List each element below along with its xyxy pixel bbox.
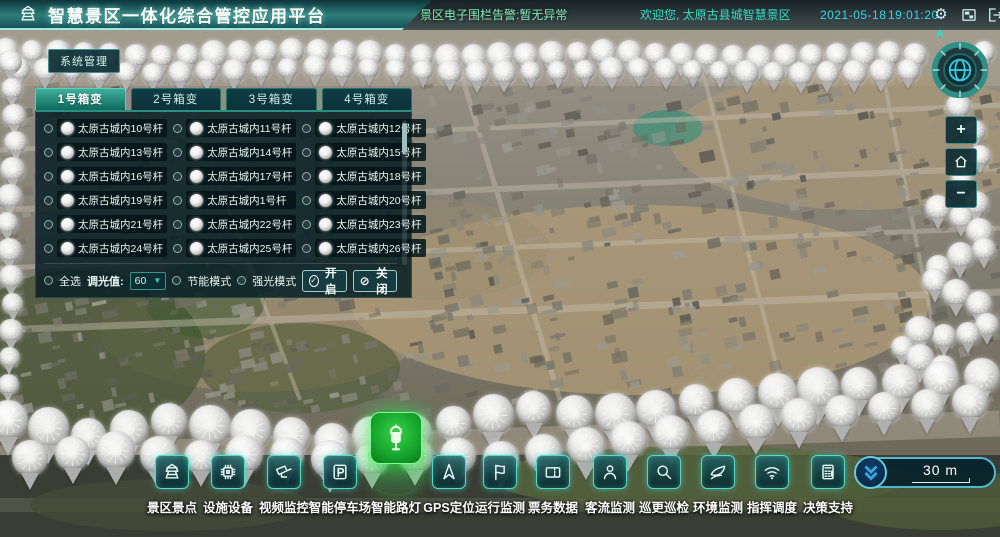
panel-body: 太原古城内10号杆太原古城内11号杆太原古城内12号杆太原古城内13号杆太原古城…: [35, 110, 412, 298]
home-icon: [953, 154, 969, 170]
toolbar-label[interactable]: 巡更巡检: [639, 497, 689, 516]
toolbar-label[interactable]: 环境监测: [693, 497, 743, 516]
streetlamp-bulb-icon: [319, 218, 332, 231]
toolbar-label[interactable]: 决策支持: [803, 497, 853, 516]
streetlamp-bulb-icon: [61, 146, 74, 159]
streetlamp-bulb-icon: [61, 170, 74, 183]
home-view-button[interactable]: [945, 148, 977, 176]
scale-bar: [912, 478, 970, 483]
lamp-label: 太原古城内21号杆: [78, 217, 163, 232]
streetlamp-bulb-icon: [61, 194, 74, 207]
system-management-button[interactable]: 系统管理: [48, 49, 120, 73]
lamp-radio[interactable]: [173, 124, 182, 133]
turn-off-label: 关闭: [375, 265, 390, 297]
streetlamp-bulb-icon: [190, 242, 203, 255]
lamp-label: 太原古城内17号杆: [207, 169, 292, 184]
route-flag-icon[interactable]: [483, 455, 517, 489]
lamp-label: 太原古城内12号杆: [336, 121, 421, 136]
lamp-label: 太原古城内15号杆: [336, 145, 421, 160]
lamp-radio[interactable]: [44, 124, 53, 133]
lamp-pill[interactable]: 太原古城内18号杆: [315, 167, 425, 185]
streetlamp-bulb-icon: [319, 170, 332, 183]
lamp-pill[interactable]: 太原古城内15号杆: [315, 143, 425, 161]
eco-mode-radio[interactable]: [172, 276, 181, 285]
smart-scenic-platform: 智慧景区一体化综合管控应用平台 景区电子围栏告警:暂无异常 欢迎您, 太原古县城…: [0, 0, 1000, 537]
lamp-item[interactable]: 太原古城内18号杆: [302, 166, 425, 186]
platform-logo-pagoda-icon: [18, 4, 38, 24]
lamp-pill[interactable]: 太原古城内1号杆: [186, 191, 296, 209]
lamp-item[interactable]: 太原古城内21号杆: [44, 214, 167, 234]
lamp-pill[interactable]: 太原古城内14号杆: [186, 143, 296, 161]
lamp-label: 太原古城内1号杆: [207, 193, 286, 208]
lamp-item[interactable]: 太原古城内16号杆: [44, 166, 167, 186]
lamp-label: 太原古城内19号杆: [78, 193, 163, 208]
toolbar-label[interactable]: 指挥调度: [747, 497, 797, 516]
settings-gear-icon[interactable]: ⚙: [932, 6, 950, 24]
lamp-list-scrollbar[interactable]: [402, 120, 407, 265]
lamp-item[interactable]: 太原古城内15号杆: [302, 142, 425, 162]
dim-value-current: 60: [135, 275, 147, 287]
welcome-text: 欢迎您, 太原古县城智慧景区: [640, 0, 791, 30]
turn-off-button[interactable]: ⊘ 关闭: [353, 270, 397, 292]
lamp-item[interactable]: 太原古城内14号杆: [173, 142, 296, 162]
pagoda-icon[interactable]: [155, 455, 189, 489]
slash-circle-icon: ⊘: [360, 275, 371, 287]
lamp-radio[interactable]: [173, 244, 182, 253]
lamp-radio[interactable]: [302, 124, 311, 133]
lamp-label: 太原古城内11号杆: [207, 121, 291, 136]
lamp-label: 太原古城内14号杆: [207, 145, 292, 160]
lamp-pill[interactable]: 太原古城内20号杆: [315, 191, 425, 209]
lamp-radio[interactable]: [302, 244, 311, 253]
scale-badge[interactable]: [854, 456, 887, 489]
patrol-icon[interactable]: [647, 455, 681, 489]
streetlamp-bulb-icon: [190, 194, 203, 207]
lamp-label: 太原古城内25号杆: [207, 241, 292, 256]
streetlamp-bulb-icon: [61, 218, 74, 231]
turn-on-button[interactable]: ✓ 开启: [302, 270, 346, 292]
lamp-radio[interactable]: [44, 196, 53, 205]
streetlamp-bulb-icon: [190, 218, 203, 231]
lamp-pill[interactable]: 太原古城内17号杆: [186, 167, 296, 185]
select-all-radio[interactable]: [44, 276, 53, 285]
date-display: 2021-05-18: [820, 0, 886, 30]
lamp-radio[interactable]: [44, 244, 53, 253]
lamp-label: 太原古城内10号杆: [78, 121, 163, 136]
streetlamp-bulb-icon: [319, 194, 332, 207]
lamp-item[interactable]: 太原古城内1号杆: [173, 190, 296, 210]
double-chevron-down-icon: [860, 462, 882, 484]
toolbar-label[interactable]: 视频监控: [259, 497, 309, 516]
lamp-label: 太原古城内26号杆: [336, 241, 421, 256]
streetlamp-bulb-icon: [319, 146, 332, 159]
lamp-item[interactable]: 太原古城内10号杆: [44, 118, 167, 138]
lamp-radio[interactable]: [173, 172, 182, 181]
tab-transformer-3[interactable]: 3号箱变: [226, 88, 317, 110]
toolbar-label[interactable]: 票务数据: [528, 497, 578, 516]
toolbar-label[interactable]: 客流监测: [585, 497, 635, 516]
lamp-item[interactable]: 太原古城内12号杆: [302, 118, 425, 138]
map-zoom-controls: + −: [945, 116, 977, 212]
lamp-pill[interactable]: 太原古城内10号杆: [57, 119, 167, 137]
lamp-control-row: 全选 调光值: 60 ▼ 节能模式 强光模式 ✓ 开启 ⊘ 关闭: [44, 263, 397, 297]
lamp-item[interactable]: 太原古城内17号杆: [173, 166, 296, 186]
lamp-radio[interactable]: [302, 148, 311, 157]
toolbar-label[interactable]: 设施设备: [203, 497, 253, 516]
toolbar-label[interactable]: 运行监测: [475, 497, 525, 516]
lamp-radio[interactable]: [173, 148, 182, 157]
visitor-icon[interactable]: [593, 455, 627, 489]
parking-icon[interactable]: [323, 455, 357, 489]
toolbar-label[interactable]: 智能路灯: [371, 497, 421, 516]
lamp-label: 太原古城内24号杆: [78, 241, 163, 256]
zoom-out-button[interactable]: −: [945, 180, 977, 208]
map-scale-widget[interactable]: 30 m: [856, 457, 996, 488]
lamp-radio[interactable]: [302, 220, 311, 229]
streetlamp-bulb-icon: [319, 242, 332, 255]
ticket-icon[interactable]: [536, 455, 570, 489]
turn-on-label: 开启: [323, 265, 340, 297]
header-title-area: 智慧景区一体化综合管控应用平台: [0, 0, 432, 30]
lamp-pill[interactable]: 太原古城内11号杆: [186, 119, 296, 137]
lamp-radio[interactable]: [302, 172, 311, 181]
streetlamp-bulb-icon: [190, 170, 203, 183]
streetlamp-bulb-icon: [190, 146, 203, 159]
lamp-item[interactable]: 太原古城内19号杆: [44, 190, 167, 210]
fence-alert-status: 景区电子围栏告警:暂无异常: [420, 0, 567, 30]
streetlamp-bulb-icon: [61, 242, 74, 255]
streetlamp-bulb-icon: [190, 122, 203, 135]
eco-mode-label: 节能模式: [187, 273, 231, 289]
lamp-pill[interactable]: 太原古城内13号杆: [57, 143, 167, 161]
header-bar: 智慧景区一体化综合管控应用平台 景区电子围栏告警:暂无异常 欢迎您, 太原古县城…: [0, 0, 1000, 30]
gps-icon[interactable]: [432, 455, 466, 489]
lamp-pill[interactable]: 太原古城内24号杆: [57, 239, 167, 257]
lamp-pill[interactable]: 太原古城内19号杆: [57, 191, 167, 209]
logout-exit-icon[interactable]: [986, 6, 1000, 24]
dispatch-icon[interactable]: [755, 455, 789, 489]
lamp-pill[interactable]: 太原古城内26号杆: [315, 239, 425, 257]
tab-transformer-1[interactable]: 1号箱变: [35, 88, 126, 110]
lamp-list: 太原古城内10号杆太原古城内11号杆太原古城内12号杆太原古城内13号杆太原古城…: [44, 118, 397, 258]
lamp-item[interactable]: 太原古城内23号杆: [302, 214, 425, 234]
lamp-radio[interactable]: [173, 220, 182, 229]
toolbar-item-decision: 决策支持: [794, 455, 862, 516]
scale-readout: 30 m: [887, 462, 994, 483]
lamp-label: 太原古城内22号杆: [207, 217, 292, 232]
lamp-radio[interactable]: [44, 220, 53, 229]
lamp-label: 太原古城内16号杆: [78, 169, 163, 184]
lamp-radio[interactable]: [173, 196, 182, 205]
lamp-item[interactable]: 太原古城内25号杆: [173, 238, 296, 258]
lamp-pill[interactable]: 太原古城内25号杆: [186, 239, 296, 257]
select-all-label: 全选: [59, 273, 81, 289]
tab-transformer-2[interactable]: 2号箱变: [131, 88, 222, 110]
lamp-radio[interactable]: [44, 172, 53, 181]
lamp-item[interactable]: 太原古城内22号杆: [173, 214, 296, 234]
lamp-label: 太原古城内13号杆: [78, 145, 163, 160]
chevron-down-icon: ▼: [153, 276, 161, 285]
dim-value-select[interactable]: 60 ▼: [130, 272, 167, 290]
lamp-item[interactable]: 太原古城内24号杆: [44, 238, 167, 258]
check-circle-icon: ✓: [309, 275, 319, 287]
lamp-pill[interactable]: 太原古城内21号杆: [57, 215, 167, 233]
streetlamp-bulb-icon: [61, 122, 74, 135]
dim-value-label: 调光值:: [87, 273, 124, 289]
tab-transformer-4[interactable]: 4号箱变: [322, 88, 413, 110]
page-title: 智慧景区一体化综合管控应用平台: [48, 2, 326, 27]
transformer-tabs: 1号箱变2号箱变3号箱变4号箱变: [35, 88, 412, 110]
decision-icon[interactable]: [811, 455, 845, 489]
scrollbar-thumb[interactable]: [402, 123, 407, 153]
bright-mode-label: 强光模式: [252, 273, 296, 289]
lamp-pill[interactable]: 太原古城内23号杆: [315, 215, 425, 233]
streetlamp-bulb-icon: [319, 122, 332, 135]
toolbar-label[interactable]: 景区景点: [147, 497, 197, 516]
lamp-item[interactable]: 太原古城内11号杆: [173, 118, 296, 138]
compass-control[interactable]: [930, 40, 990, 100]
lamp-item[interactable]: 太原古城内20号杆: [302, 190, 425, 210]
scale-label: 30 m: [887, 462, 994, 478]
lamp-label: 太原古城内20号杆: [336, 193, 421, 208]
lamp-pill[interactable]: 太原古城内22号杆: [186, 215, 296, 233]
streetlamp-control-panel: 1号箱变2号箱变3号箱变4号箱变 太原古城内10号杆太原古城内11号杆太原古城内…: [35, 88, 412, 298]
lamp-pill[interactable]: 太原古城内12号杆: [315, 119, 425, 137]
lamp-pill[interactable]: 太原古城内16号杆: [57, 167, 167, 185]
lamp-label: 太原古城内18号杆: [336, 169, 421, 184]
lamp-radio[interactable]: [44, 148, 53, 157]
environment-icon[interactable]: [701, 455, 735, 489]
zoom-in-button[interactable]: +: [945, 116, 977, 144]
cctv-icon[interactable]: [267, 455, 301, 489]
bright-mode-radio[interactable]: [237, 276, 246, 285]
lamp-label: 太原古城内23号杆: [336, 217, 421, 232]
lamp-radio[interactable]: [302, 196, 311, 205]
lamp-item[interactable]: 太原古城内26号杆: [302, 238, 425, 258]
chip-icon[interactable]: [211, 455, 245, 489]
layout-switch-icon[interactable]: [960, 6, 978, 24]
lamp-item[interactable]: 太原古城内13号杆: [44, 142, 167, 162]
